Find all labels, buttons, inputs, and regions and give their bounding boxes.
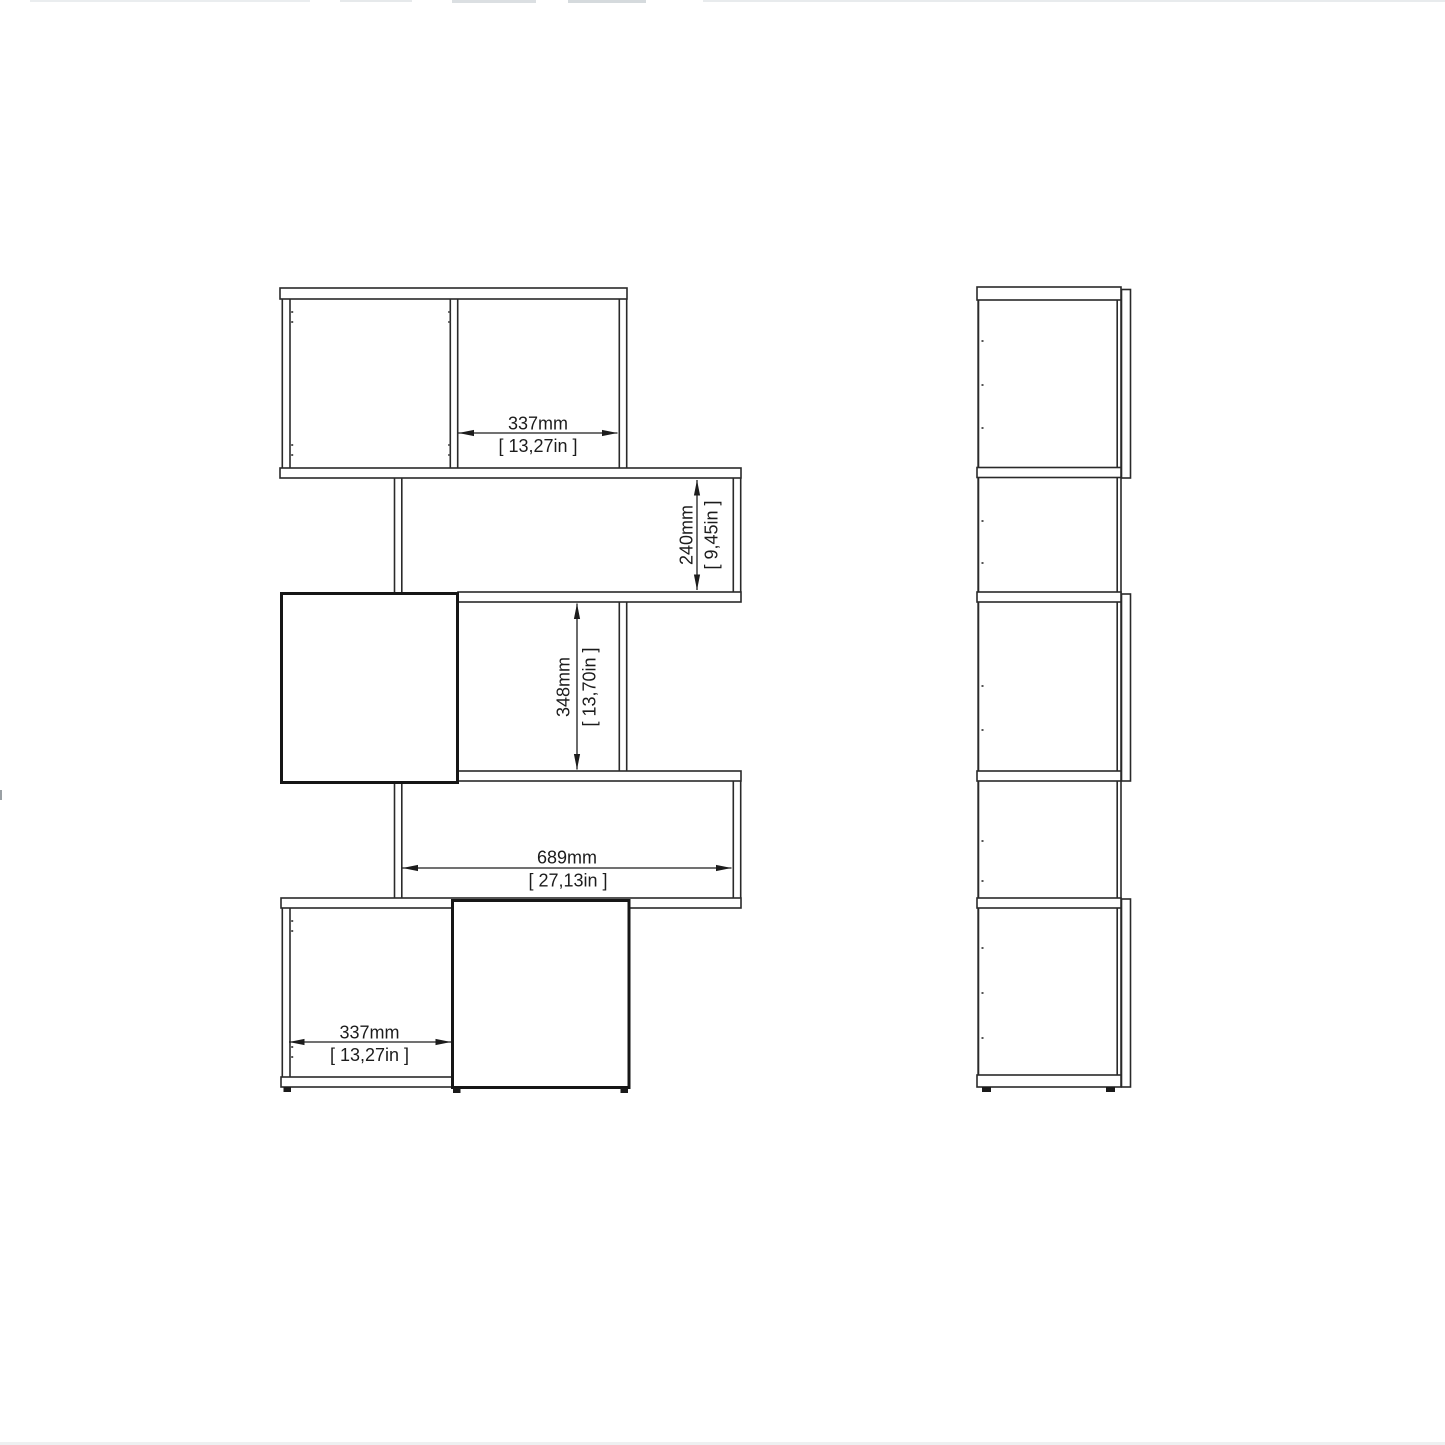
dimension-label-metric: 240mm bbox=[677, 505, 697, 565]
side-shelf-level-4 bbox=[977, 898, 1121, 908]
base-panel-left bbox=[281, 1077, 452, 1087]
side-fitting-marks bbox=[982, 340, 984, 1039]
side-top-panel bbox=[977, 287, 1121, 300]
dimension-label-imperial: [ 13,70in ] bbox=[580, 647, 600, 726]
bottom-door-panel bbox=[453, 901, 630, 1088]
side-overhang-middle bbox=[1122, 594, 1131, 781]
side-shelf-level-3 bbox=[977, 771, 1121, 781]
dimension-top-cube-width: 337mm [ 13,27in ] bbox=[459, 414, 618, 457]
foot bbox=[621, 1088, 629, 1093]
dimension-label-imperial: [ 9,45in ] bbox=[702, 500, 722, 569]
dimension-label-metric: 689mm bbox=[537, 848, 597, 868]
side-view bbox=[977, 287, 1131, 1092]
dimension-shelf-gap-height: 240mm [ 9,45in ] bbox=[677, 480, 722, 590]
dimension-drawing-page: 337mm [ 13,27in ] 240mm [ 9,45in ] 348mm… bbox=[0, 0, 1445, 1445]
foot bbox=[982, 1087, 991, 1092]
foot bbox=[1106, 1087, 1115, 1092]
tier1-center-divider bbox=[450, 299, 457, 468]
side-shelf-level-1 bbox=[977, 468, 1121, 478]
shelf-level-2 bbox=[458, 592, 741, 602]
side-base-panel bbox=[977, 1075, 1121, 1087]
dimension-label-imperial: [ 13,27in ] bbox=[498, 436, 577, 456]
side-overhang-top bbox=[1122, 290, 1131, 479]
tier4-support-panel bbox=[395, 781, 402, 898]
top-panel bbox=[280, 288, 627, 299]
tier2-support-panel bbox=[395, 478, 402, 594]
dimension-label-imperial: [ 27,13in ] bbox=[528, 871, 607, 891]
side-shelf-level-2 bbox=[977, 592, 1121, 602]
shelf-level-1 bbox=[280, 468, 741, 478]
side-front-panel bbox=[1117, 300, 1121, 1075]
shelf-level-3 bbox=[458, 771, 741, 781]
tier4-right-side-panel bbox=[733, 781, 740, 898]
dimension-label-metric: 337mm bbox=[508, 414, 568, 434]
dimension-label-imperial: [ 13,27in ] bbox=[330, 1045, 409, 1065]
tier5-left-side-panel bbox=[282, 908, 290, 1077]
front-view: 337mm [ 13,27in ] 240mm [ 9,45in ] 348mm… bbox=[280, 288, 741, 1093]
dimension-long-shelf-width: 689mm [ 27,13in ] bbox=[403, 848, 732, 891]
furniture-dimension-diagram: 337mm [ 13,27in ] 240mm [ 9,45in ] 348mm… bbox=[0, 0, 1445, 1445]
dimension-middle-cube-height: 348mm [ 13,70in ] bbox=[554, 604, 600, 770]
dimension-bottom-cube-width: 337mm [ 13,27in ] bbox=[289, 1023, 451, 1066]
side-overhang-bottom bbox=[1122, 899, 1131, 1087]
tier1-right-side-panel bbox=[619, 299, 626, 468]
foot bbox=[453, 1088, 461, 1093]
tier3-right-side-panel bbox=[619, 602, 626, 771]
foot bbox=[284, 1087, 292, 1092]
middle-door-panel bbox=[282, 594, 458, 783]
tier2-right-side-panel bbox=[733, 478, 740, 592]
tier1-left-side-panel bbox=[282, 299, 290, 468]
dimension-label-metric: 337mm bbox=[339, 1023, 399, 1043]
dimension-label-metric: 348mm bbox=[554, 657, 574, 717]
